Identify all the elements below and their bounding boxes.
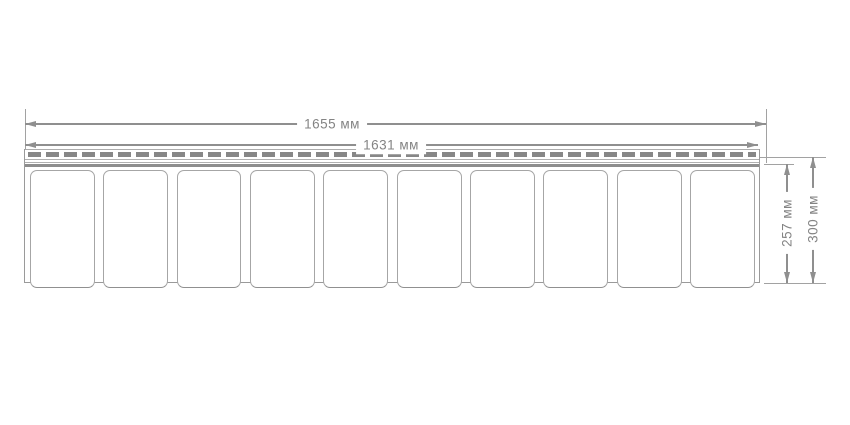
drawing-canvas: 1655 мм 1631 мм 257 мм 300 мм <box>0 0 850 425</box>
dim-label-total-width: 1655 мм <box>297 115 367 133</box>
arrowhead-right-icon <box>755 121 766 127</box>
arrowhead-right-icon <box>747 142 758 148</box>
arrowhead-down-icon <box>810 272 816 283</box>
arrowhead-left-icon <box>25 121 36 127</box>
dim-label-total-height: 300 мм <box>804 188 822 250</box>
arrowhead-up-icon <box>810 157 816 168</box>
dimension-layer: 1655 мм 1631 мм 257 мм 300 мм <box>0 0 850 425</box>
extension-line-top-257 <box>764 164 794 165</box>
extension-line-right-total <box>766 109 767 163</box>
arrowhead-down-icon <box>784 272 790 283</box>
dim-label-working-width: 1631 мм <box>356 136 426 154</box>
dim-line <box>25 123 766 124</box>
extension-line-top-300 <box>760 157 826 158</box>
arrowhead-left-icon <box>25 142 36 148</box>
arrowhead-up-icon <box>784 164 790 175</box>
dim-label-panel-height: 257 мм <box>778 192 796 254</box>
extension-line-bottom <box>764 283 826 284</box>
